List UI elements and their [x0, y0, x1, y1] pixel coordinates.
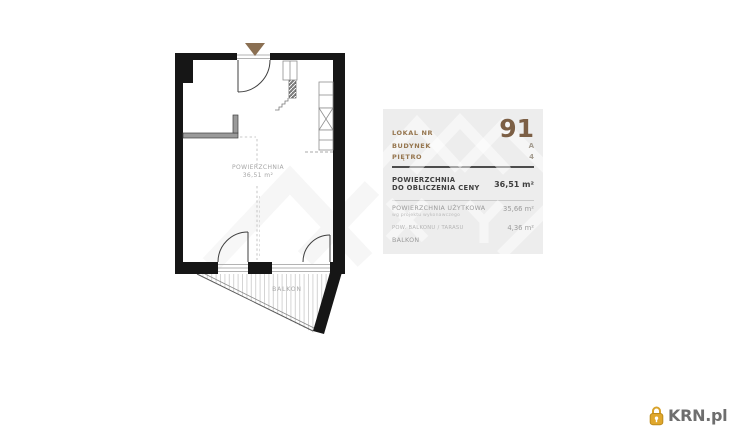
outdoor-item-label: BALKON	[392, 237, 419, 244]
partition-walls	[183, 115, 238, 138]
floor-plan	[0, 0, 740, 443]
unit-number: 91	[499, 118, 534, 140]
price-area-value: 36,51 m²	[494, 180, 534, 189]
hall-cabinet	[283, 61, 297, 80]
floor-value: 4	[529, 153, 534, 161]
duct-wall-hatch	[289, 80, 296, 98]
outdoor-area-label: POW. BALKONU / TARASU	[392, 225, 464, 231]
floorplan-card: POWIERZCHNIA 36,51 m² BALKON LOKAL NR 91…	[0, 0, 740, 443]
usable-area-note: wg projektu wykonawczego	[392, 213, 485, 218]
floor-label: PIĘTRO	[392, 153, 422, 161]
usable-area-label: POWIERZCHNIA UŻYTKOWA	[392, 205, 485, 212]
usable-area-label-block: POWIERZCHNIA UŻYTKOWA wg projektu wykona…	[392, 205, 485, 218]
kitchen-units	[305, 82, 333, 152]
padlock-icon	[647, 405, 666, 426]
room-area-title: POWIERZCHNIA	[208, 164, 308, 172]
price-area-label-line2: DO OBLICZENIA CENY	[392, 184, 480, 193]
room-area-label: POWIERZCHNIA 36,51 m²	[208, 164, 308, 180]
info-panel: LOKAL NR 91 BUDYNEK A PIĘTRO 4 POWIERZCH…	[383, 109, 543, 254]
price-area-label: POWIERZCHNIA DO OBLICZENIA CENY	[392, 176, 480, 193]
room-area-value: 36,51 m²	[208, 172, 308, 180]
balcony-label: BALKON	[262, 286, 312, 293]
divider	[392, 166, 534, 168]
entrance-arrow-icon	[245, 43, 265, 56]
balcony	[197, 272, 332, 334]
price-area-label-line1: POWIERZCHNIA	[392, 176, 480, 185]
building-label: BUDYNEK	[392, 142, 431, 150]
krn-logo: KRN.pl	[647, 405, 727, 426]
page-watermark	[210, 180, 372, 265]
building-value: A	[529, 142, 534, 150]
krn-logo-text: KRN.pl	[668, 406, 727, 425]
step-symbol	[275, 98, 288, 110]
outdoor-area-value: 4,36 m²	[507, 224, 534, 232]
divider	[392, 200, 534, 201]
usable-area-value: 35,66 m²	[503, 205, 534, 213]
unit-label: LOKAL NR	[392, 129, 433, 140]
